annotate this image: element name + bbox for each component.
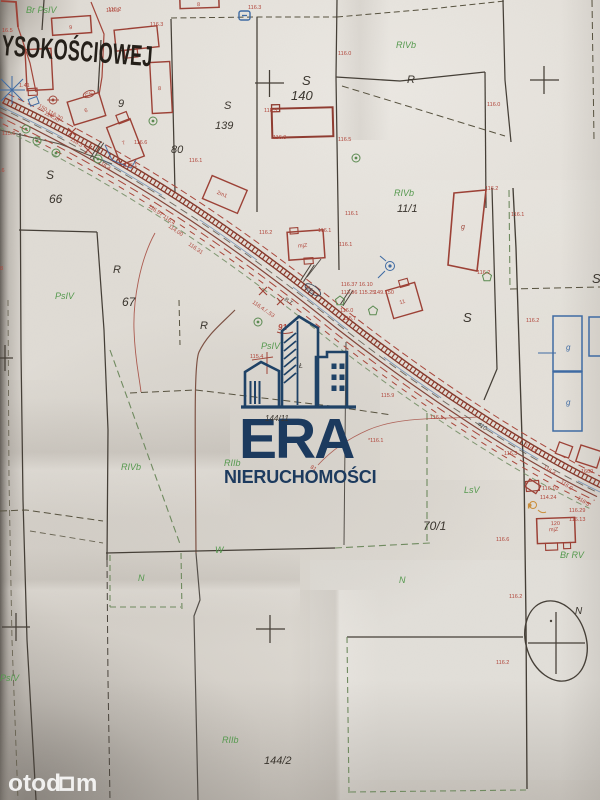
svg-text:139: 139 <box>215 120 233 132</box>
svg-text:116.1: 116.1 <box>124 163 137 169</box>
svg-text:g: g <box>461 224 465 231</box>
svg-text:Ł: Ł <box>299 363 303 370</box>
svg-text:.6: .6 <box>0 168 5 174</box>
svg-text:116.5: 116.5 <box>338 137 351 143</box>
svg-text:116.1: 116.1 <box>318 228 331 234</box>
svg-text:116.0: 116.0 <box>340 308 353 314</box>
svg-text:116.0: 116.0 <box>273 135 286 141</box>
svg-text:115.9: 115.9 <box>381 393 394 399</box>
svg-text:116.1: 116.1 <box>339 242 352 248</box>
svg-text:1.41: 1.41 <box>19 83 30 89</box>
svg-text:120: 120 <box>551 521 560 527</box>
svg-text:otod: otod <box>8 770 61 797</box>
svg-text:S: S <box>592 271 600 286</box>
svg-text:115.7: 115.7 <box>343 316 356 322</box>
svg-text:*116.1: *116.1 <box>368 438 384 444</box>
svg-text:144/11: 144/11 <box>265 414 289 423</box>
svg-text:115.6: 115.6 <box>2 131 15 137</box>
svg-text:116.2: 116.2 <box>259 230 272 236</box>
svg-text:PsIV: PsIV <box>0 673 20 683</box>
svg-text:ERA: ERA <box>239 407 354 471</box>
svg-text:S: S <box>224 100 232 112</box>
svg-text:N: N <box>138 573 145 583</box>
svg-text:N: N <box>399 575 406 585</box>
svg-text:116.2: 116.2 <box>477 270 490 276</box>
svg-text:9: 9 <box>118 98 124 110</box>
svg-text:RIVb: RIVb <box>394 188 414 198</box>
svg-text:116.1: 116.1 <box>511 212 524 218</box>
svg-text:S: S <box>463 310 472 325</box>
svg-text:R: R <box>407 74 415 86</box>
svg-text:116.0: 116.0 <box>487 102 500 108</box>
svg-text:R: R <box>200 320 208 332</box>
svg-text:8: 8 <box>0 266 3 272</box>
svg-text:116.10: 116.10 <box>542 486 558 492</box>
svg-text:RIVb: RIVb <box>121 462 141 472</box>
svg-text:140: 140 <box>291 88 313 103</box>
svg-text:R: R <box>113 264 121 276</box>
svg-text:116.2: 116.2 <box>496 660 509 666</box>
svg-text:149.150: 149.150 <box>374 290 394 296</box>
svg-text:RIIb: RIIb <box>222 735 239 745</box>
svg-text:mjZ: mjZ <box>298 243 308 250</box>
svg-text:g: g <box>566 398 571 407</box>
svg-text:116.1: 116.1 <box>430 415 443 421</box>
svg-text:8: 8 <box>197 2 200 8</box>
svg-text:LsV: LsV <box>464 485 481 495</box>
svg-text:8: 8 <box>158 86 161 92</box>
svg-text:S: S <box>302 73 311 88</box>
svg-text:116.6: 116.6 <box>134 140 147 146</box>
svg-text:PsIV: PsIV <box>55 291 75 301</box>
svg-text:66: 66 <box>49 192 63 206</box>
svg-text:N: N <box>575 606 583 617</box>
svg-text:116.2: 116.2 <box>108 7 121 13</box>
svg-text:116.3: 116.3 <box>504 451 517 457</box>
svg-text:116.2: 116.2 <box>509 594 522 600</box>
svg-text:67: 67 <box>122 295 137 309</box>
svg-text:116.1: 116.1 <box>345 211 358 217</box>
svg-text:1600: 1600 <box>581 469 593 475</box>
svg-text:11/1: 11/1 <box>397 203 418 215</box>
svg-text:116.1: 116.1 <box>189 158 202 164</box>
svg-text:70/1: 70/1 <box>423 519 446 533</box>
svg-text:NIERUCHOMOŚCI: NIERUCHOMOŚCI <box>224 466 376 487</box>
svg-text:80: 80 <box>171 144 184 156</box>
svg-text:116.3: 116.3 <box>150 22 163 28</box>
svg-text:116.2: 116.2 <box>485 186 498 192</box>
svg-text:g: g <box>566 343 571 352</box>
svg-text:RIVb: RIVb <box>396 40 416 50</box>
svg-text:114.24: 114.24 <box>540 495 556 501</box>
svg-text:Br RV: Br RV <box>560 550 585 560</box>
svg-text:116.3: 116.3 <box>248 5 261 11</box>
svg-text:m: m <box>76 770 97 797</box>
svg-text:116.0: 116.0 <box>338 51 351 57</box>
svg-text:116.2: 116.2 <box>526 318 539 324</box>
svg-text:mjZ: mjZ <box>549 527 559 533</box>
svg-text:9: 9 <box>69 25 72 31</box>
svg-text:144/2: 144/2 <box>264 755 292 767</box>
svg-text:PsIV: PsIV <box>261 341 281 351</box>
svg-text:113.96 115.25: 113.96 115.25 <box>341 290 375 296</box>
svg-text:S: S <box>46 168 54 182</box>
svg-text:116.29: 116.29 <box>569 508 585 514</box>
svg-text:116.13: 116.13 <box>569 517 585 523</box>
svg-text:116.6: 116.6 <box>496 537 509 543</box>
svg-text:118.3: 118.3 <box>264 108 277 114</box>
svg-text:Br PsIV: Br PsIV <box>26 5 58 15</box>
svg-text:116.37 16.10: 116.37 16.10 <box>341 282 373 288</box>
svg-text:16.5: 16.5 <box>2 28 13 34</box>
